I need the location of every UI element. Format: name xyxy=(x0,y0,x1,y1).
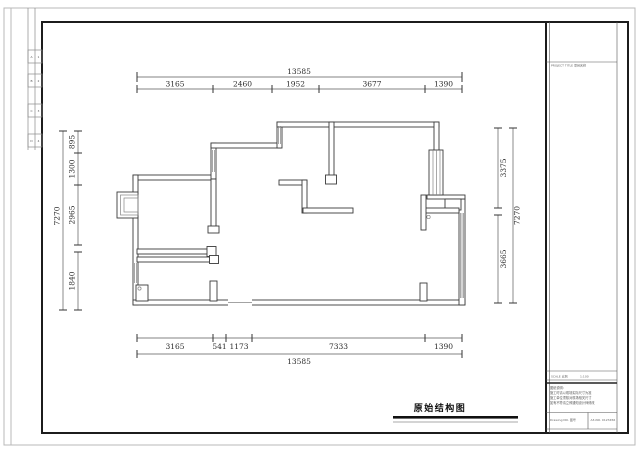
wall-top-left-room xyxy=(133,175,215,180)
partition-cap xyxy=(208,226,219,233)
dim-text: 2965 xyxy=(68,205,77,224)
dim-text: 3677 xyxy=(362,80,381,89)
dim-text-bottom-overall: 13585 xyxy=(287,357,311,366)
living-wall-left xyxy=(303,208,353,213)
fold-mark: 4 xyxy=(38,139,40,143)
wall-top-main xyxy=(277,122,439,127)
dim-text: 3165 xyxy=(165,342,184,351)
dim-text: 541 xyxy=(212,342,226,351)
project-title-label: PROJECT TITLE 项目名称 xyxy=(551,63,586,68)
note-line: 如有不符请立即通知设计师修改 xyxy=(550,400,595,405)
partition-horizontal-a xyxy=(137,249,209,254)
wall-stub-bottom xyxy=(420,283,427,301)
sheet-no: A3-NO. 0123456 xyxy=(591,418,616,422)
fold-mark: 3 xyxy=(38,109,40,113)
plan-title: 原始结构图 xyxy=(393,402,518,422)
fold-mark: A xyxy=(30,55,33,59)
dim-text: 3665 xyxy=(499,249,508,268)
dim-text-right-overall: 7270 xyxy=(513,206,522,225)
dim-text: 7333 xyxy=(329,342,348,351)
cad-drawing-canvas: A 1 B 2 C 3 D 4 PROJECT TITLE 项目名称 SCALE… xyxy=(0,0,640,456)
bay-window-left xyxy=(117,192,138,218)
partition-cap xyxy=(326,175,337,184)
dim-text: 1390 xyxy=(434,80,453,89)
partition-cap xyxy=(207,247,216,257)
wall-cross-vertical xyxy=(421,195,426,230)
dim-text: 1952 xyxy=(286,80,305,89)
plan-title-text: 原始结构图 xyxy=(414,402,467,414)
dim-text: 3375 xyxy=(499,158,508,177)
dim-text: 1300 xyxy=(68,159,77,178)
dimension-left: 7270 895 1300 2965 1840 xyxy=(53,131,83,310)
wall-balcony-top xyxy=(427,195,465,199)
scale-value: 1:100 xyxy=(580,375,589,379)
bay-window-frame xyxy=(429,150,443,195)
shaft-box xyxy=(136,285,148,301)
wall-stub-lower-left xyxy=(210,281,217,301)
fold-mark: B xyxy=(30,79,32,83)
dimension-top: 13585 3165 2460 1952 3677 1390 xyxy=(137,67,462,93)
dim-text: 3165 xyxy=(165,80,184,89)
floor-plan xyxy=(117,122,465,306)
dim-text: 1173 xyxy=(229,342,248,351)
title-block: PROJECT TITLE 项目名称 SCALE 比例 1:100 图纸说明: … xyxy=(546,22,617,433)
fold-mark: D xyxy=(30,139,33,143)
dimension-bottom: 3165 541 1173 7333 1390 13585 xyxy=(137,334,462,366)
partition-cap xyxy=(210,256,219,264)
drawing-no-label: Drawing NO. 图号 xyxy=(550,417,576,422)
fold-mark: 2 xyxy=(38,79,40,83)
outer-border xyxy=(4,8,635,445)
dim-text-top-overall: 13585 xyxy=(287,67,311,76)
door-pivot-symbol xyxy=(427,215,430,218)
wall-right-upper xyxy=(434,122,439,153)
dim-text-left-overall: 7270 xyxy=(53,206,62,225)
dim-text: 895 xyxy=(68,135,77,150)
partition-horizontal-b xyxy=(137,257,211,262)
dim-text: 2460 xyxy=(233,80,252,89)
drawing-frame xyxy=(42,22,628,433)
fold-mark: 1 xyxy=(38,55,40,59)
partition-top-rooms xyxy=(329,122,334,177)
scale-label: SCALE 比例 xyxy=(551,374,568,379)
wall-bottom xyxy=(133,300,465,305)
bay-window-right xyxy=(429,150,443,195)
wall-mid-top xyxy=(211,143,281,148)
living-wall-right xyxy=(424,208,459,213)
cad-sheet: A 1 B 2 C 3 D 4 PROJECT TITLE 项目名称 SCALE… xyxy=(0,0,640,456)
dim-text: 1390 xyxy=(434,342,453,351)
dimension-right: 3375 3665 7270 xyxy=(494,128,522,303)
binding-strip: A 1 B 2 C 3 D 4 xyxy=(28,8,42,150)
plan-title-underline-thick xyxy=(393,416,518,419)
partition-left-room xyxy=(211,179,216,232)
note-line: 施工单位须核对现场相关尺寸 xyxy=(550,395,592,400)
dim-text: 1840 xyxy=(68,271,77,290)
page-borders xyxy=(4,8,635,445)
note-line: 施工时请以现场实际尺寸为准 xyxy=(550,390,592,395)
note-line: 图纸说明: xyxy=(550,385,564,390)
fold-mark: C xyxy=(30,109,32,113)
